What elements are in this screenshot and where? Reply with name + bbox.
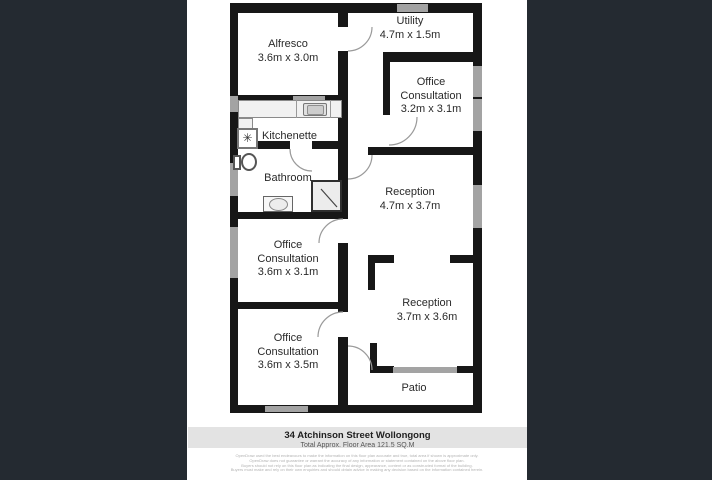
room-name: Alfresco (230, 38, 346, 52)
utility-bottom-wall (383, 52, 473, 62)
property-address: 34 Atchinson Street Wollongong (188, 430, 527, 441)
room-label-patio: Patio (347, 382, 481, 396)
vanity-basin (269, 198, 288, 211)
room-name: Kitchenette (262, 130, 317, 144)
patio-sliding-window (393, 367, 457, 373)
office1-window-a (473, 66, 482, 97)
room-dims: 3.6m x 3.1m (230, 266, 346, 280)
room-dims: 3.6m x 3.0m (230, 52, 346, 66)
office1-window-b (473, 99, 482, 131)
room-name: Reception (365, 297, 489, 311)
kitchenette-window (230, 96, 238, 112)
reception1-window (473, 185, 482, 228)
room-dims: 3.7m x 3.6m (365, 311, 489, 325)
room-label-office-consultation-3: Office Consultation 3.6m x 3.5m (230, 332, 346, 373)
plan-layer: ✳ Alfre (0, 0, 712, 480)
floor-area-text: Total Approx. Floor Area 121.5 SQ.M (188, 442, 527, 449)
reception-divider-b (450, 255, 473, 263)
utility-window (397, 4, 428, 12)
toilet-icon (233, 155, 241, 170)
office3-window (265, 406, 308, 412)
extractor-fan-icon: ✳ (237, 128, 258, 149)
outer-wall-top (230, 3, 482, 13)
room-label-kitchenette: Kitchenette (262, 130, 317, 144)
room-dims: 3.6m x 3.5m (230, 359, 346, 373)
office2-bottom-wall (230, 302, 348, 309)
patio-door-arc (348, 346, 372, 370)
room-name: Office (230, 332, 346, 346)
room-name: Consultation (230, 253, 346, 267)
room-name: Bathroom (230, 172, 346, 186)
bathroom-bottom-wall (230, 212, 348, 219)
vanity-sink-icon (263, 196, 293, 212)
address-bar: 34 Atchinson Street Wollongong Total App… (188, 427, 527, 448)
room-name: Office (230, 239, 346, 253)
patio-door-stub (370, 343, 377, 373)
reception-divider-stub (368, 255, 375, 290)
room-dims: 4.7m x 3.7m (347, 200, 473, 214)
office1-door-arc (389, 117, 417, 145)
room-label-utility: Utility 4.7m x 1.5m (347, 15, 473, 42)
disclaimer-text: OpenDraw used the best endeavours to mak… (207, 454, 507, 473)
room-label-office-consultation-2: Office Consultation 3.6m x 3.1m (230, 239, 346, 280)
floorplan-canvas: ✳ Alfre (187, 0, 527, 480)
reception1-top-wall (368, 147, 473, 155)
room-label-bathroom: Bathroom (230, 172, 346, 186)
toilet-bowl-icon (241, 153, 257, 171)
room-name: Consultation (388, 90, 474, 104)
reception1-door-arc (348, 155, 372, 179)
kitchenette-wall-b (312, 141, 348, 149)
room-label-reception-1: Reception 4.7m x 3.7m (347, 186, 473, 213)
sink-basin (307, 105, 324, 115)
room-label-reception-2: Reception 3.7m x 3.6m (365, 297, 489, 324)
room-name: Utility (347, 15, 473, 29)
kitchen-sink-icon (303, 103, 327, 116)
room-label-alfresco: Alfresco 3.6m x 3.0m (230, 38, 346, 65)
room-dims: 3.2m x 3.1m (388, 103, 474, 117)
room-name: Consultation (230, 346, 346, 360)
room-label-office-consultation-1: Office Consultation 3.2m x 3.1m (388, 76, 474, 117)
counter-divider (296, 100, 297, 118)
room-name: Patio (347, 382, 481, 396)
room-dims: 4.7m x 1.5m (347, 29, 473, 43)
room-name: Reception (347, 186, 473, 200)
counter-divider (330, 100, 331, 118)
photo-viewer-stage: ✳ Alfre (0, 0, 712, 480)
disclaimer-line: Buyers must make and rely on their own e… (207, 468, 507, 473)
patio-top-wall-b (457, 366, 473, 373)
room-name: Office (388, 76, 474, 90)
bathroom-door-arc (290, 149, 312, 171)
